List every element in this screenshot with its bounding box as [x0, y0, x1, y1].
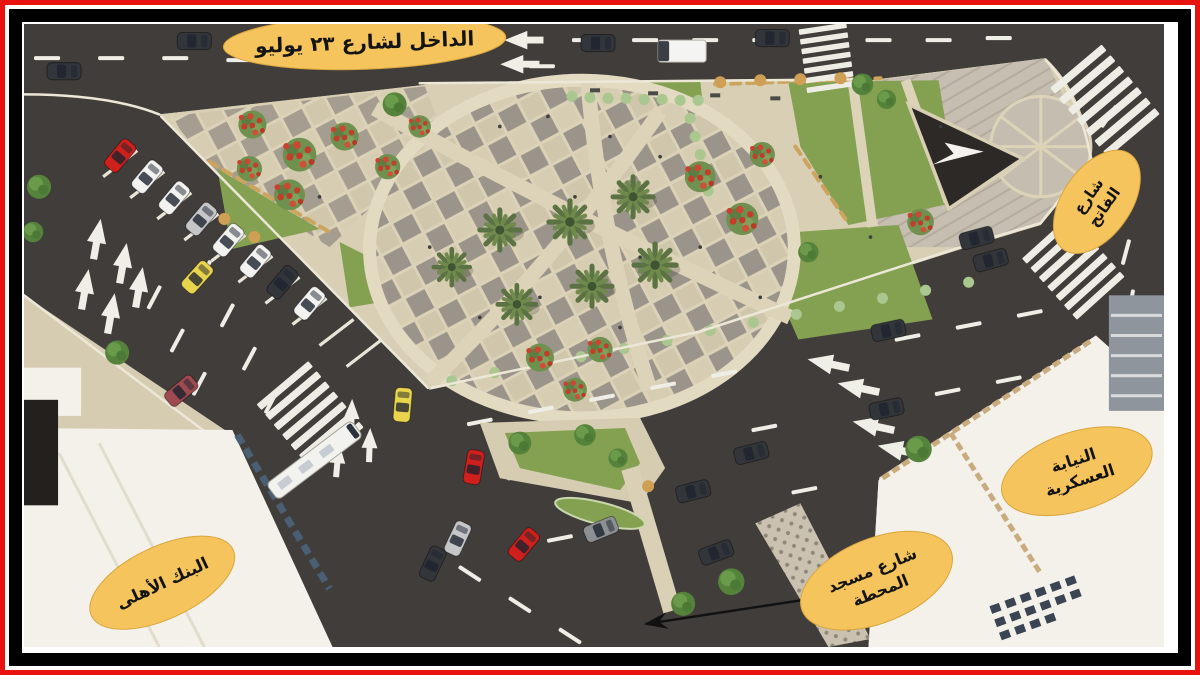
tan-shrub — [834, 72, 846, 84]
tree — [508, 432, 531, 455]
tree — [608, 448, 627, 467]
black-frame: الداخل لشارع ٢٣ يوليو شارع الفاتح النياب… — [9, 9, 1191, 666]
flower-tree — [238, 110, 266, 138]
tree — [671, 592, 695, 616]
car — [581, 35, 615, 52]
tree — [877, 90, 896, 109]
car — [177, 33, 211, 50]
tan-shrub — [754, 74, 766, 86]
flower-tree — [726, 203, 758, 235]
white-matte: الداخل لشارع ٢٣ يوليو شارع الفاتح النياب… — [5, 5, 1195, 670]
flower-tree — [283, 138, 317, 172]
flower-tree — [685, 161, 716, 192]
tan-shrub — [642, 480, 654, 492]
flower-tree — [587, 337, 612, 362]
flower-tree — [375, 154, 400, 179]
tan-shrub — [248, 231, 260, 243]
tree — [798, 242, 818, 262]
gray-building-right — [1109, 295, 1164, 411]
tree — [383, 92, 407, 116]
car — [47, 63, 81, 80]
flower-tree — [331, 122, 359, 150]
flower-tree — [526, 344, 554, 372]
flower-tree — [907, 209, 934, 236]
tree — [852, 73, 874, 95]
flower-tree — [408, 115, 430, 138]
tan-shrub — [794, 73, 806, 85]
tree — [574, 424, 596, 446]
flower-tree — [750, 142, 775, 167]
photo-canvas: الداخل لشارع ٢٣ يوليو شارع الفاتح النياب… — [22, 22, 1178, 653]
framed-plan-image: الداخل لشارع ٢٣ يوليو شارع الفاتح النياب… — [0, 0, 1200, 675]
tree — [718, 568, 744, 595]
tree — [105, 341, 129, 365]
tree — [27, 175, 51, 199]
tan-shrub — [714, 76, 726, 88]
taxi — [393, 387, 413, 423]
flower-tree — [563, 378, 587, 402]
flower-tree — [274, 179, 305, 210]
tree — [905, 436, 931, 463]
truck — [658, 40, 706, 62]
aerial-plan-rendering: الداخل لشارع ٢٣ يوليو شارع الفاتح النياب… — [24, 24, 1164, 647]
car — [755, 30, 789, 47]
dark-strip-left — [24, 400, 58, 506]
flower-tree — [237, 156, 262, 181]
tan-shrub — [218, 213, 230, 225]
